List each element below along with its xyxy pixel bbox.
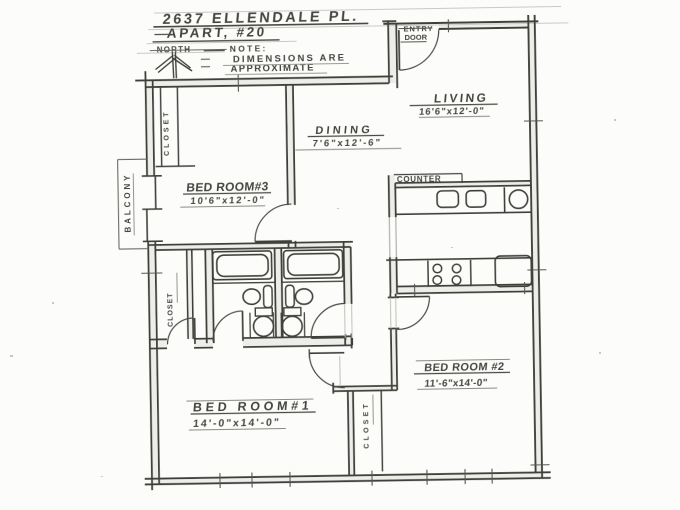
svg-text:7'6"x12'-6": 7'6"x12'-6" (312, 137, 382, 149)
svg-text:CLOSET: CLOSET (363, 401, 371, 449)
svg-text:CLOSET: CLOSET (167, 292, 175, 326)
svg-text:NOTE:: NOTE: (230, 43, 268, 54)
svg-text:14'-0"x14'-0": 14'-0"x14'-0" (193, 417, 281, 430)
svg-text:APART, #20: APART, #20 (166, 24, 267, 41)
svg-text:10'6"x12'-0": 10'6"x12'-0" (190, 195, 266, 207)
svg-text:LIVING: LIVING (433, 91, 489, 106)
svg-text:DOOR: DOOR (404, 33, 427, 42)
svg-text:BALCONY: BALCONY (123, 173, 133, 233)
svg-text:DINING: DINING (315, 124, 374, 137)
svg-text:BED ROOM#3: BED ROOM#3 (186, 179, 269, 194)
svg-text:CLOSET: CLOSET (163, 109, 171, 155)
